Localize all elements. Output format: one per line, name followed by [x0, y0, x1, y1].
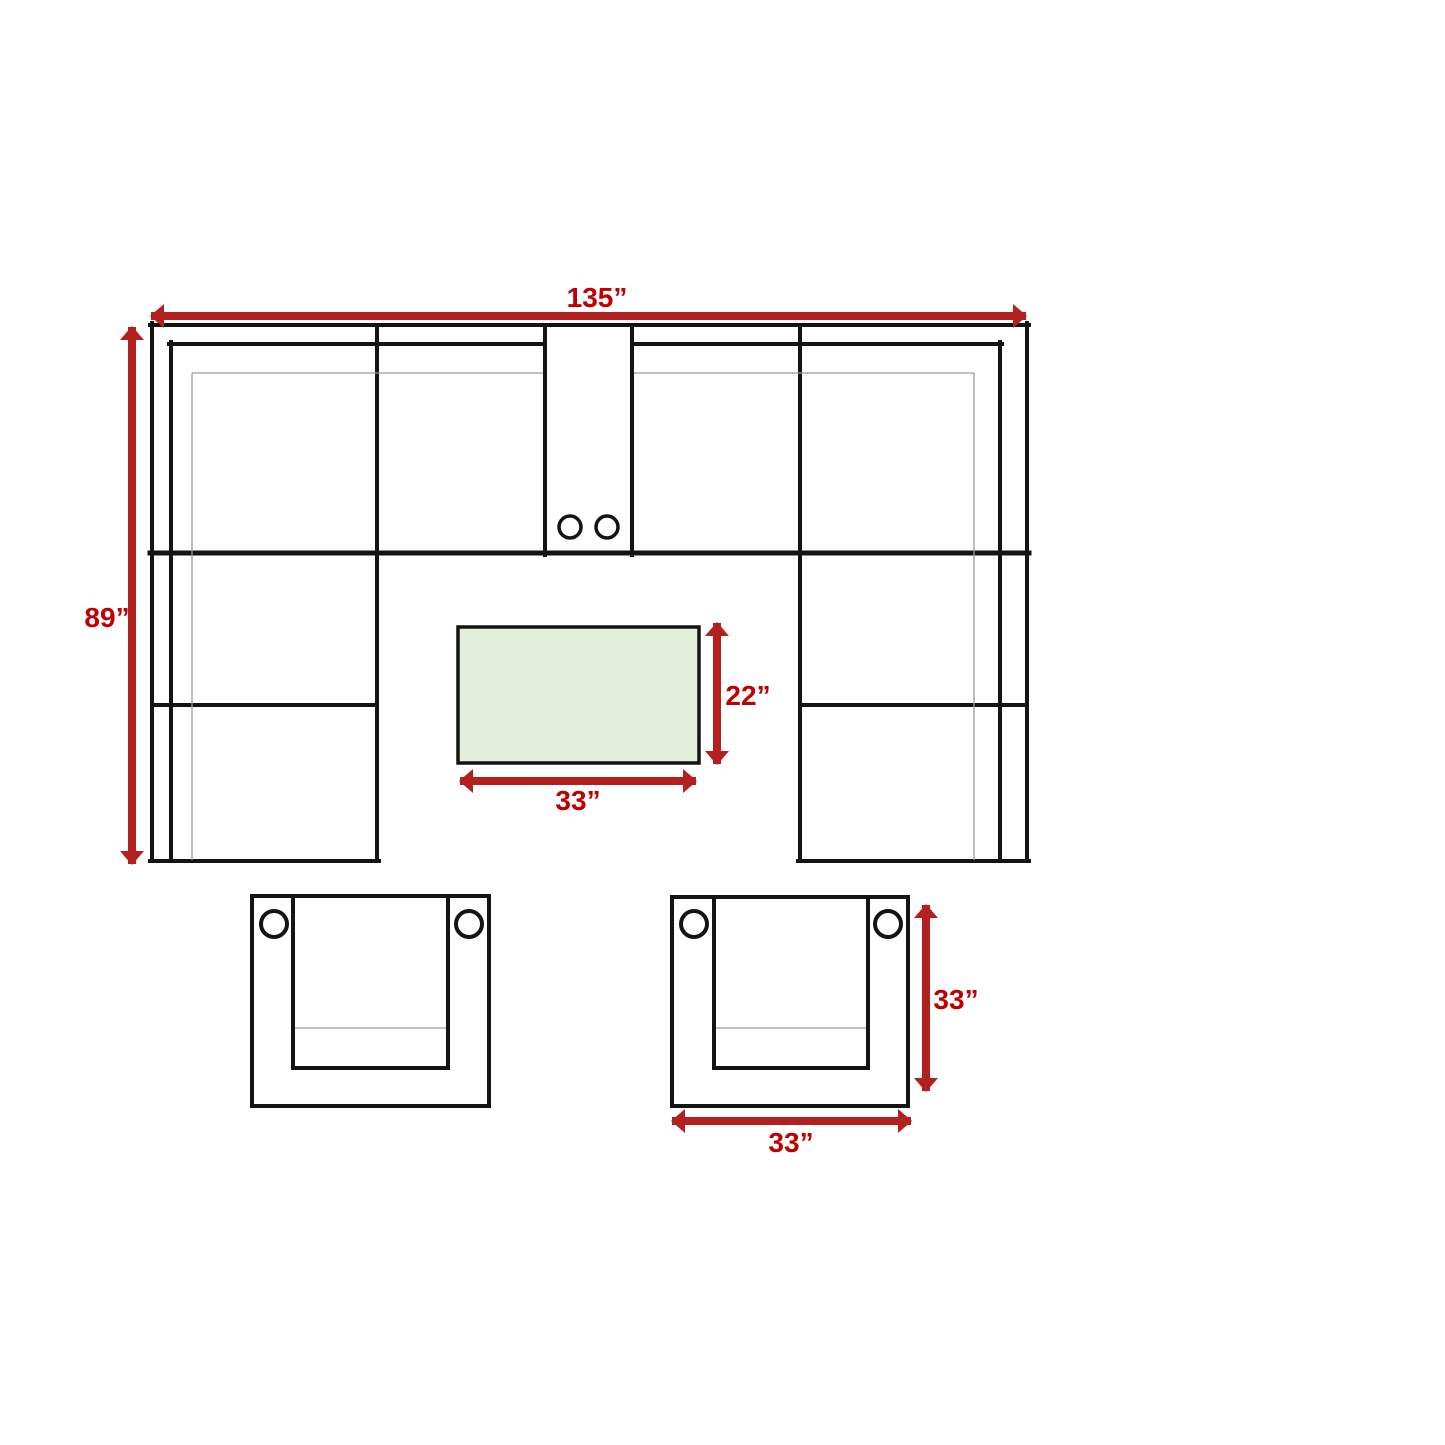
- club-chair-left: [252, 896, 489, 1106]
- chair-depth-label: 33”: [933, 984, 978, 1015]
- chair-left-cup-holder-left: [261, 911, 287, 937]
- coffee-table: [458, 627, 699, 763]
- console-cup-holder-right: [596, 516, 618, 538]
- console-section: [545, 325, 632, 555]
- coffee-table-top: [458, 627, 699, 763]
- table-width-label: 33”: [555, 785, 600, 816]
- chair-right-cup-holder-left: [681, 911, 707, 937]
- sofa-depth-label: 89”: [84, 602, 129, 633]
- chair-right-seat: [714, 897, 868, 1068]
- diagram-canvas: 135” 89” 22” 33” 33” 33”: [0, 0, 1445, 1445]
- chair-width-label: 33”: [768, 1127, 813, 1158]
- furniture-dimension-diagram: 135” 89” 22” 33” 33” 33”: [0, 0, 1445, 1445]
- table-depth-label: 22”: [725, 680, 770, 711]
- sofa-width-label: 135”: [567, 282, 628, 313]
- club-chair-right: [672, 897, 908, 1106]
- chair-right-cup-holder-right: [875, 911, 901, 937]
- chair-left-seat: [293, 896, 448, 1068]
- console-cup-holder-left: [559, 516, 581, 538]
- chair-left-cup-holder-right: [456, 911, 482, 937]
